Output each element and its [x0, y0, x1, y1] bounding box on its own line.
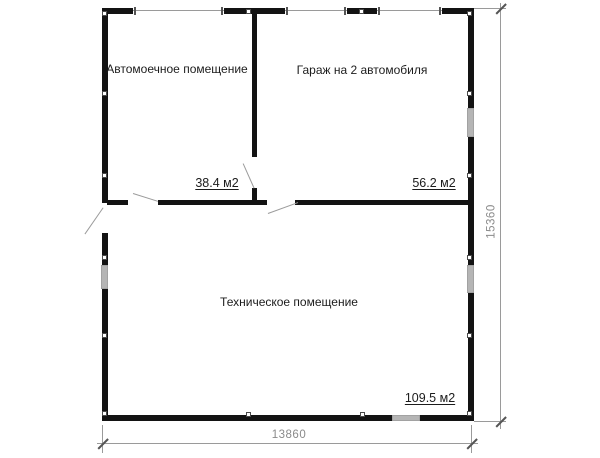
window-bottom-wall [392, 415, 420, 421]
gate-opening-tick [378, 7, 380, 15]
gate-opening-line-1 [133, 10, 224, 11]
area-label-technical: 109.5 м2 [400, 391, 460, 405]
gate-opening-tick [286, 7, 288, 15]
window-left-wall [101, 265, 108, 289]
wall-marker [102, 411, 107, 416]
wall-marker [102, 255, 107, 260]
wall-marker [246, 412, 251, 417]
dimension-extension-bottom-right2 [471, 425, 472, 453]
floor-plan: Автомоечное помещение Гараж на 2 автомоб… [0, 0, 600, 458]
area-label-carwash: 38.4 м2 [192, 176, 242, 190]
gate-opening-tick [344, 7, 346, 15]
wall-left-segment-2 [102, 233, 108, 421]
wall-interior-horizontal-left [107, 200, 128, 205]
wall-marker [102, 333, 107, 338]
wall-right [468, 8, 474, 421]
gate-opening-tick [221, 7, 223, 15]
wall-interior-vertical-upper [252, 8, 257, 157]
gate-opening-tick [439, 7, 441, 15]
door-leaf-carwash [133, 193, 158, 202]
wall-marker [102, 91, 107, 96]
door-leaf-exterior-left [84, 207, 103, 234]
dimension-value-height: 15360 [486, 199, 499, 245]
gate-opening-line-2 [285, 10, 347, 11]
door-leaf-garage-carwash [242, 163, 254, 188]
room-label-technical: Техническое помещение [209, 295, 369, 309]
gate-opening-tick [134, 7, 136, 15]
room-label-garage: Гараж на 2 автомобиля [287, 63, 437, 77]
wall-marker [246, 9, 251, 14]
wall-marker [102, 173, 107, 178]
wall-marker [467, 11, 472, 16]
dimension-value-width: 13860 [259, 429, 319, 442]
area-label-garage: 56.2 м2 [409, 176, 459, 190]
door-leaf-technical [268, 202, 299, 214]
window-right-wall-upper [467, 108, 474, 137]
wall-marker [360, 412, 365, 417]
wall-marker [467, 91, 472, 96]
dimension-extension-bottom-left [102, 425, 103, 453]
wall-marker [467, 173, 472, 178]
wall-marker [359, 9, 364, 14]
wall-marker [467, 333, 472, 338]
wall-marker [467, 411, 472, 416]
wall-interior-horizontal-mid [158, 200, 267, 205]
wall-marker [467, 255, 472, 260]
gate-opening-line-3 [377, 10, 442, 11]
window-right-wall-lower [467, 265, 474, 293]
wall-interior-horizontal-right [295, 200, 468, 205]
dimension-line-vertical [500, 3, 501, 429]
dimension-line-horizontal [97, 443, 478, 444]
wall-marker [102, 11, 107, 16]
room-label-carwash: Автомоечное помещение [97, 62, 257, 76]
